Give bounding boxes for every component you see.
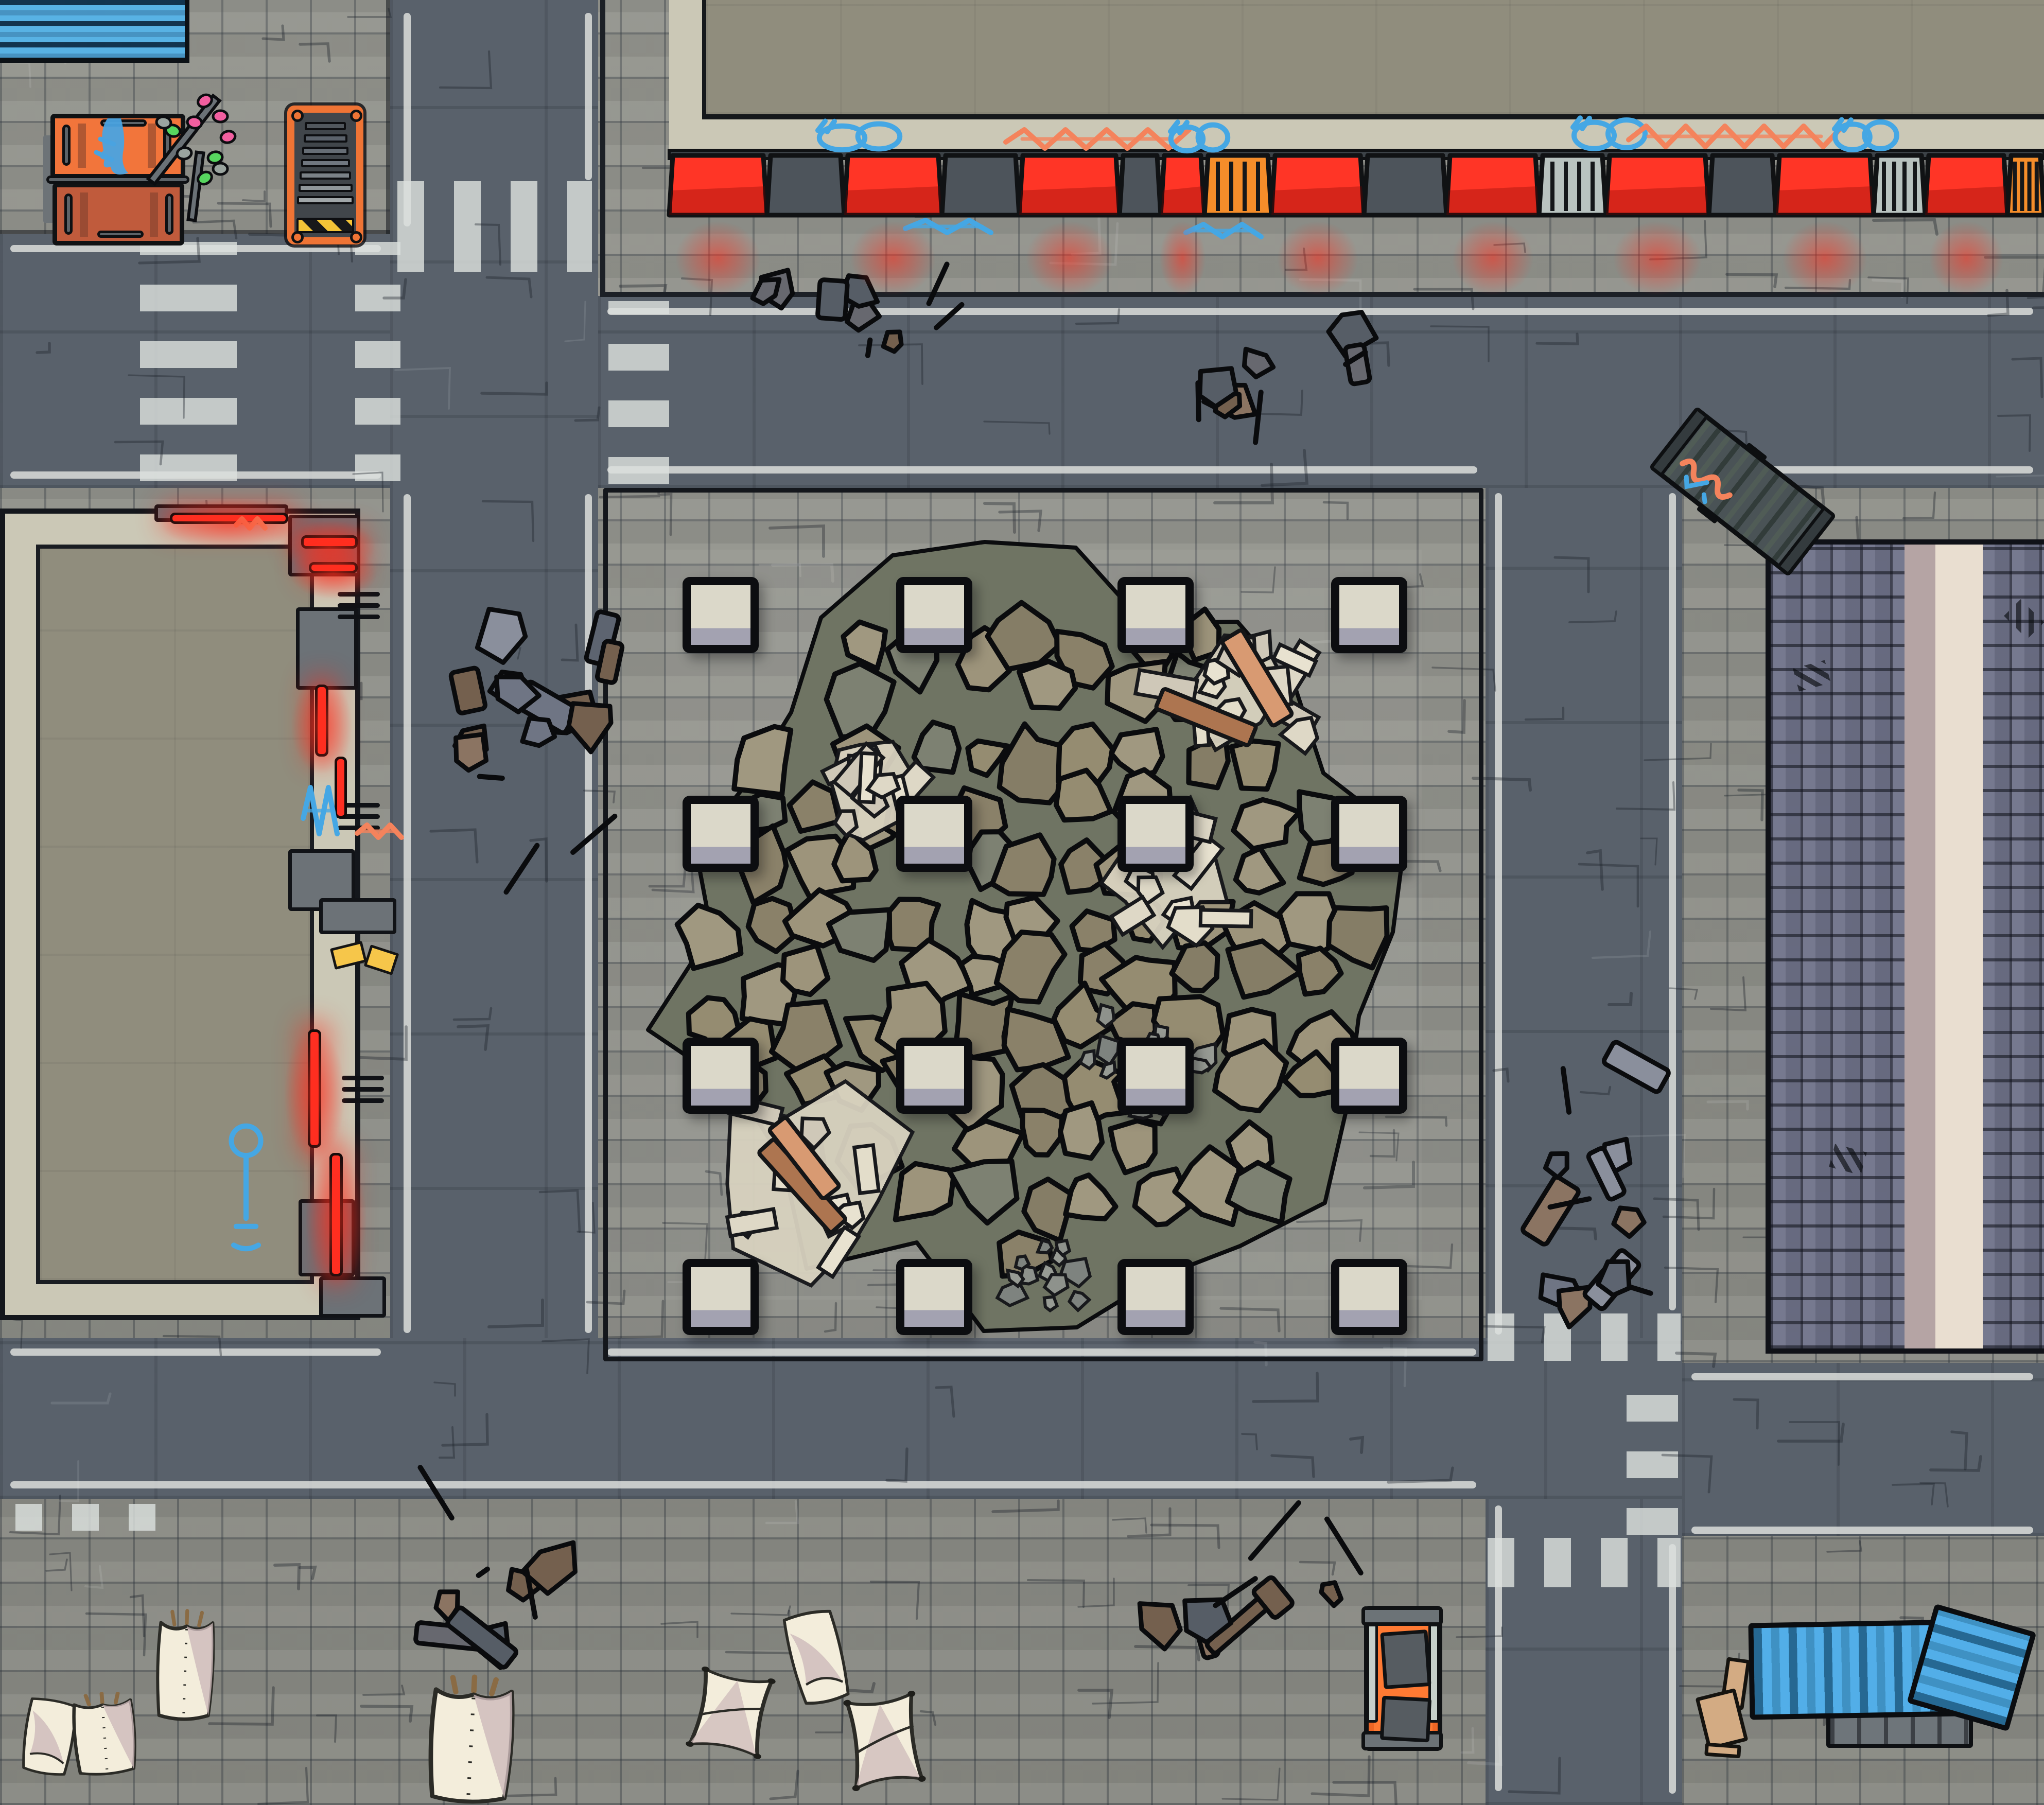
debris-layer	[0, 0, 2044, 1805]
street-debris-5	[1125, 1557, 1405, 1647]
street-debris-3	[1523, 1027, 1669, 1343]
battlemap	[0, 0, 2044, 1805]
street-debris-0	[741, 281, 937, 358]
street-debris-1	[1179, 315, 1400, 420]
street-debris-4	[394, 1516, 592, 1665]
street-debris-2	[442, 600, 645, 860]
